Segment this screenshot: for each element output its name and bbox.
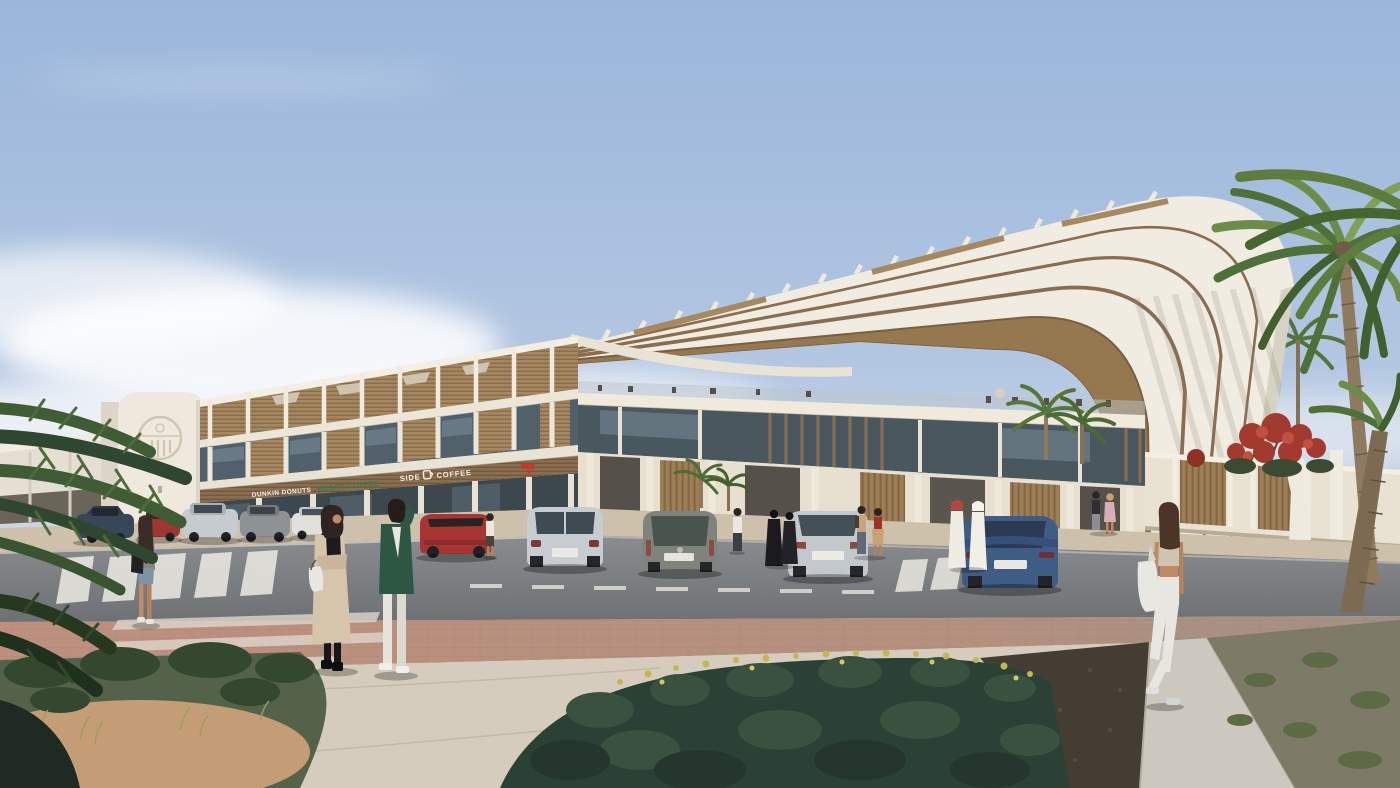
store-sign-side: SIDE bbox=[399, 472, 420, 483]
red-convertible bbox=[416, 514, 496, 563]
rendered-scene: DUNKIN DONUTS HEART COFFEE SIDE COFFEE bbox=[0, 0, 1400, 788]
silver-suv bbox=[178, 503, 242, 545]
grey-hatchback bbox=[638, 511, 722, 579]
silver-mercedes-suv bbox=[523, 507, 607, 574]
scene-canvas: DUNKIN DONUTS HEART COFFEE SIDE COFFEE bbox=[0, 0, 1400, 788]
